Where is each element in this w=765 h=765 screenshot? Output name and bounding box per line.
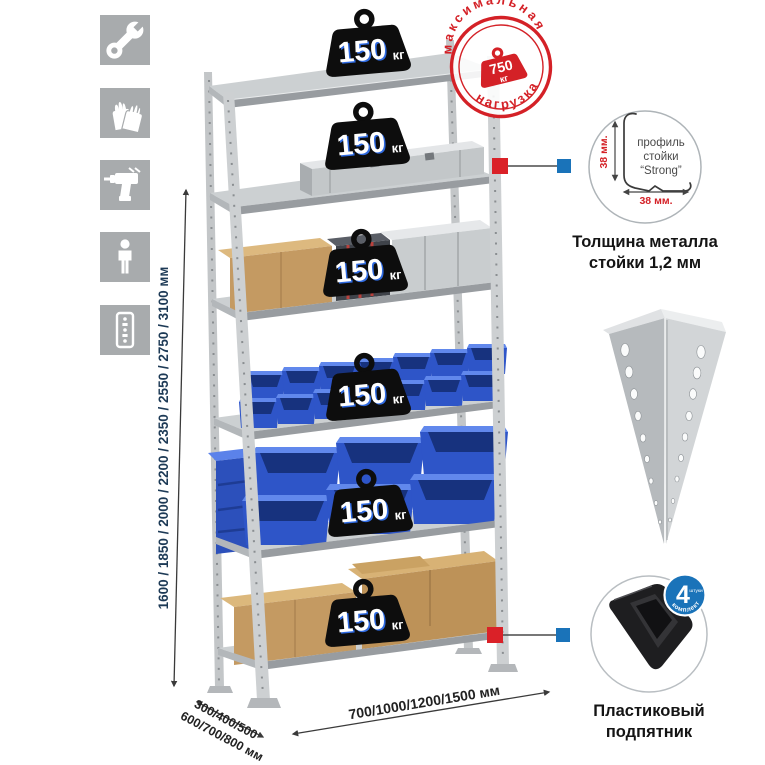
svg-text:150: 150 [337,33,388,69]
capacity-badge-1: 150 150 кг [321,8,411,78]
profile-caption-line2: стойки 1,2 мм [589,254,701,272]
capacity-badges: 150 150 кг 150 150 кг 150 150 кг 150 150… [318,8,413,648]
foot-caption-line1: Пластиковый [593,702,704,720]
svg-text:кг: кг [391,140,405,156]
height-dimension: 1600 / 1850 / 2000 / 2200 / 2350 / 2550 … [156,190,186,686]
profile-label-2: стойки [643,151,678,163]
profile-dim-horizontal: 38 мм. [639,195,672,207]
quantity-badge: 4 штуки в комплекте [665,575,706,616]
rack-post-icon [100,305,150,355]
width-dimension-label: 700/1000/1200/1500 мм [347,682,501,723]
shelving-rack-illustration: 1600 / 1850 / 2000 / 2200 / 2350 / 2550 … [0,0,765,765]
red-marker-bottom [487,627,503,643]
wrench-icon [100,15,150,65]
svg-text:150: 150 [336,126,387,162]
blue-marker-top [557,159,571,173]
perforated-post-image [603,309,726,544]
svg-text:150: 150 [336,603,387,639]
foot-caption-line2: подпятник [606,723,693,741]
svg-text:кг: кг [389,267,403,283]
product-illustration-page: 1600 / 1850 / 2000 / 2200 / 2350 / 2550 … [0,0,765,765]
profile-detail-circle: 38 мм. 38 мм. профиль стойки “Strong” [589,111,701,223]
profile-dim-vertical: 38 мм. [598,135,610,168]
profile-label-1: профиль [637,137,685,149]
svg-text:кг: кг [394,507,408,523]
svg-text:кг: кг [392,391,406,407]
profile-caption-line1: Толщина металла [572,233,718,251]
blue-marker-bottom [556,628,570,642]
height-dimension-label: 1600 / 1850 / 2000 / 2200 / 2350 / 2550 … [156,267,171,610]
person-icon [100,232,150,282]
svg-text:150: 150 [337,377,388,413]
capacity-badge-2: 150 150 кг [320,101,410,171]
feature-icons-column [100,15,150,355]
gloves-icon [100,88,150,138]
quantity-badge-small: штуки [689,589,703,594]
width-dimension: 700/1000/1200/1500 мм [293,682,549,734]
svg-text:150: 150 [334,253,385,289]
red-marker-top [492,158,508,174]
drill-icon [100,160,150,210]
callout-connector-bottom [487,627,570,643]
svg-text:кг: кг [392,47,406,63]
profile-label-3: “Strong” [640,165,682,177]
svg-text:кг: кг [391,617,405,633]
svg-text:150: 150 [339,493,390,529]
callout-connector-top [492,158,571,174]
